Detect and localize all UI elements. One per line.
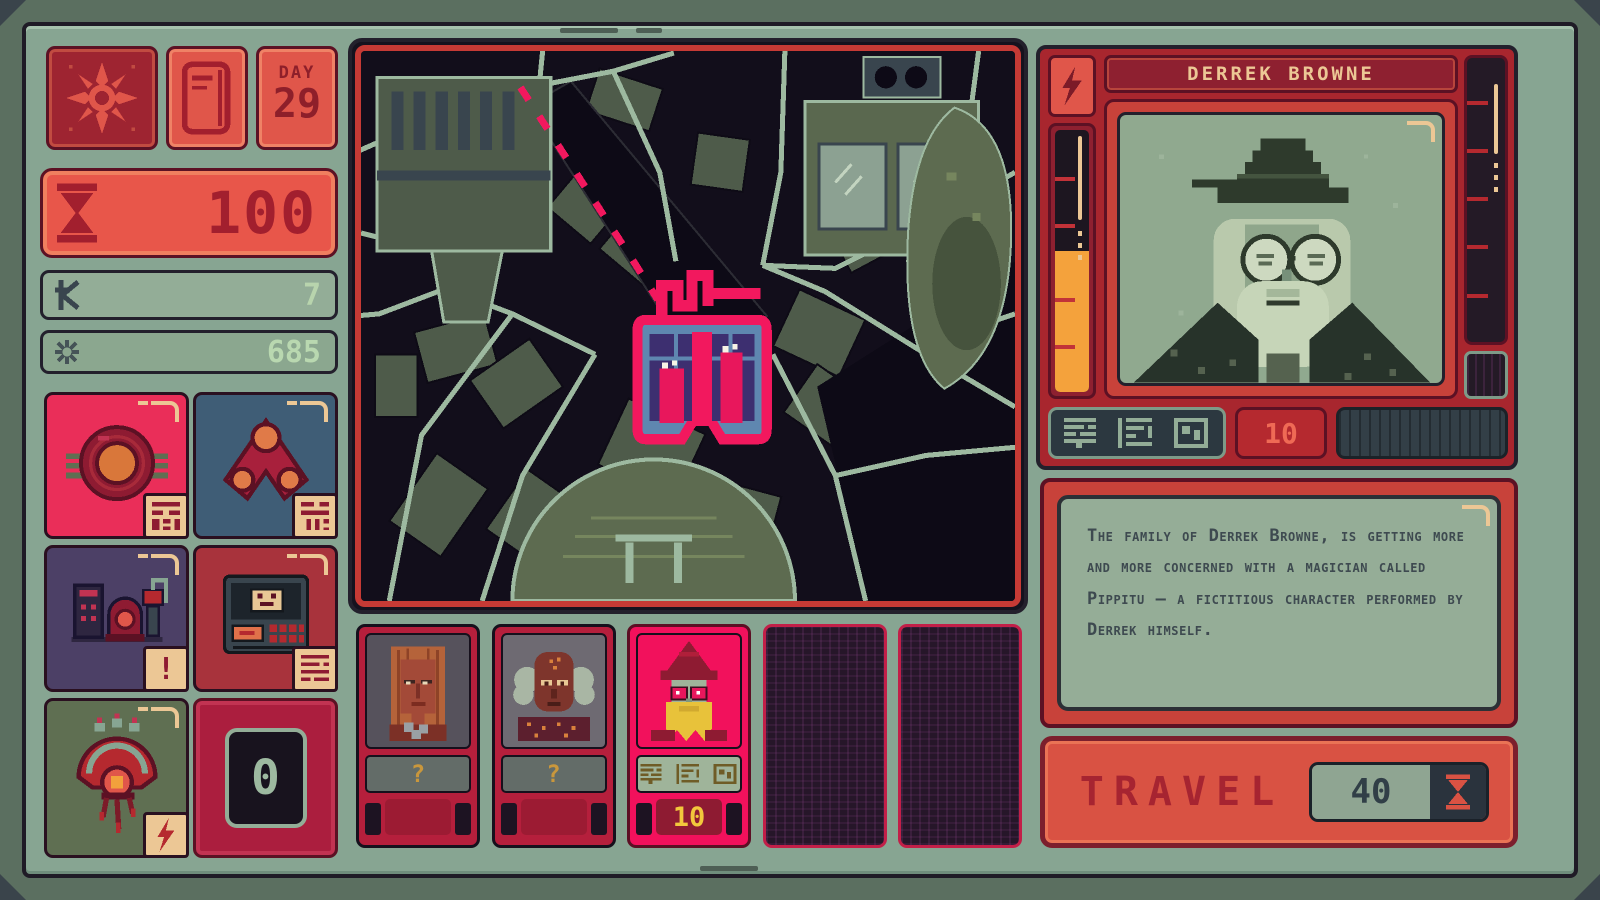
game-screen: DAY 29 100 7 <box>0 0 1600 900</box>
compass-button[interactable] <box>46 46 158 150</box>
party-portrait-2 <box>501 633 607 749</box>
unknown-label: ? <box>546 760 560 788</box>
gauge-tick <box>1055 224 1075 228</box>
journal-button[interactable] <box>166 46 248 150</box>
footer-stud <box>455 803 471 835</box>
visit-counter-display: 0 <box>225 728 307 828</box>
corner-accent <box>1407 121 1435 142</box>
portrait-magician <box>638 635 740 747</box>
device-button-lamp[interactable] <box>44 698 189 858</box>
hire-fee-value: 10 <box>1264 417 1298 450</box>
day-counter: DAY 29 <box>256 46 338 150</box>
credits-value: 7 <box>81 278 335 313</box>
credits-bar: 7 <box>40 270 338 320</box>
character-description: The family of Derrek Browne, is getting … <box>1087 526 1464 640</box>
gauge-tick <box>1467 197 1488 201</box>
hourglass-icon <box>1430 765 1486 819</box>
gauge-tick <box>1467 245 1488 249</box>
time-points-bar: 100 <box>40 168 338 258</box>
kredit-icon <box>55 280 81 310</box>
gauge-tick <box>1055 298 1075 302</box>
gauge-tick <box>1467 294 1488 298</box>
footer-plate <box>385 799 451 835</box>
footer-stud <box>365 803 381 835</box>
energy-tile <box>1048 55 1096 117</box>
city-map-frame <box>355 45 1021 607</box>
hire-fee-tile: 10 <box>1235 407 1327 459</box>
lumens-bar: 685 <box>40 330 338 374</box>
city-map-panel <box>348 38 1028 614</box>
aux-gauge <box>1464 55 1508 345</box>
barcode-badge <box>292 493 338 539</box>
barcode-plate <box>1048 407 1226 459</box>
portrait-derrek-browne <box>1120 115 1442 383</box>
time-points-value: 100 <box>99 179 335 247</box>
city-map[interactable] <box>361 51 1015 601</box>
portrait-bald-man <box>503 635 605 747</box>
corner-accent <box>1462 505 1490 526</box>
gauge-highlight <box>1494 84 1498 154</box>
footer-stud <box>591 803 607 835</box>
alert-glyph: ! <box>157 652 175 687</box>
journal-icon <box>179 59 235 137</box>
gauge-tick <box>1467 101 1488 105</box>
lumens-value: 685 <box>79 335 335 370</box>
party-strip: ? <box>356 624 1022 848</box>
travel-label: TRAVEL <box>1045 769 1309 815</box>
device-button-scanner[interactable] <box>44 392 189 539</box>
footer-plate <box>521 799 587 835</box>
fee-row: 10 <box>1048 407 1508 459</box>
party-card-footer <box>365 799 471 839</box>
energy-gauge-well <box>1055 130 1089 392</box>
corner-cut <box>1574 0 1600 26</box>
bezel-vent <box>636 28 662 33</box>
gauge-tick <box>1467 149 1488 153</box>
compass-icon <box>63 59 141 137</box>
barcode-badge <box>292 646 338 692</box>
party-portrait-1 <box>365 633 471 749</box>
lightning-icon <box>1059 66 1085 106</box>
hourglass-icon <box>55 182 99 244</box>
party-card-1[interactable]: ? <box>356 624 480 848</box>
corner-cut <box>0 0 26 26</box>
energy-gauge <box>1048 123 1096 399</box>
description-panel: The family of Derrek Browne, is getting … <box>1040 478 1518 728</box>
description-box: The family of Derrek Browne, is getting … <box>1057 495 1501 711</box>
day-value: 29 <box>259 83 335 125</box>
portrait-woman <box>367 635 469 747</box>
party-name-plate-1: ? <box>365 755 471 793</box>
party-card-footer: 10 <box>636 799 742 839</box>
gauge-highlight <box>1078 136 1082 220</box>
alert-badge: ! <box>143 646 189 692</box>
device-button-recorder[interactable] <box>193 545 338 692</box>
party-card-3-selected[interactable]: 10 <box>627 624 751 848</box>
character-panel: DERREK BROWNE <box>1036 45 1518 470</box>
barcode-glyphs <box>639 762 739 786</box>
aux-slot <box>1464 351 1508 399</box>
party-card-2[interactable]: ? <box>492 624 616 848</box>
energy-gauge-fill <box>1055 251 1089 392</box>
bezel-vent <box>560 28 618 33</box>
party-name-plate-2: ? <box>501 755 607 793</box>
device-button-workshop[interactable]: ! <box>44 545 189 692</box>
character-name: DERREK BROWNE <box>1187 63 1375 85</box>
corner-cut <box>0 874 26 900</box>
party-card-5-empty[interactable] <box>898 624 1022 848</box>
party-barcode-plate <box>636 755 742 793</box>
visit-counter-value: 0 <box>251 750 280 806</box>
travel-button[interactable]: TRAVEL 40 <box>1040 736 1518 848</box>
party-fee: 10 <box>656 799 722 835</box>
footer-stud <box>501 803 517 835</box>
gauge-tick <box>1055 177 1075 181</box>
travel-cost-value: 40 <box>1312 765 1430 819</box>
empty-slot-plate <box>1336 407 1508 459</box>
footer-stud <box>726 803 742 835</box>
party-card-footer <box>501 799 607 839</box>
character-portrait-screen <box>1117 112 1445 386</box>
barcode-badge <box>143 493 189 539</box>
lightning-badge <box>143 812 189 858</box>
travel-cost-display: 40 <box>1309 762 1489 822</box>
day-label: DAY <box>259 63 335 83</box>
gauge-highlight-dots <box>1078 226 1082 260</box>
character-name-bar: DERREK BROWNE <box>1104 55 1458 93</box>
visit-counter: 0 <box>193 698 338 858</box>
sun-icon <box>55 340 79 364</box>
unknown-label: ? <box>411 760 425 788</box>
bezel-vent <box>700 866 758 871</box>
footer-stud <box>636 803 652 835</box>
barcode-glyphs <box>1062 416 1212 450</box>
character-portrait-frame <box>1104 99 1458 399</box>
party-card-4-empty[interactable] <box>763 624 887 848</box>
party-portrait-3 <box>636 633 742 749</box>
corner-cut <box>1574 874 1600 900</box>
gauge-tick <box>1055 345 1075 349</box>
device-button-claw[interactable] <box>193 392 338 539</box>
gauge-highlight-dots <box>1494 158 1498 192</box>
